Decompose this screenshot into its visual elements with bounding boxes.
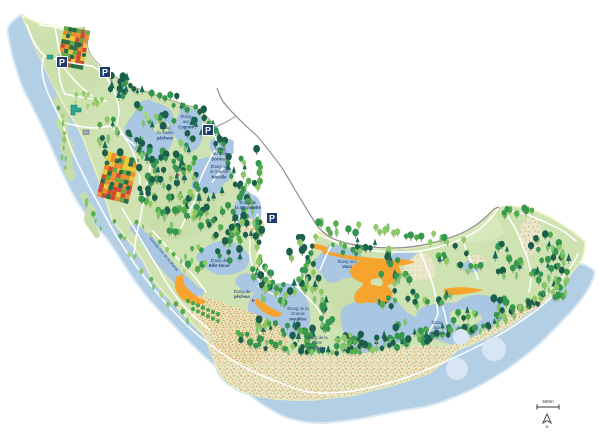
svg-text:P: P: [269, 213, 275, 223]
svg-text:P: P: [102, 67, 108, 77]
svg-text:P: P: [59, 57, 65, 67]
svg-text:N: N: [546, 424, 549, 429]
svg-text:500m: 500m: [542, 399, 554, 404]
svg-text:Étang deBille Noue: Étang deBille Noue: [209, 258, 230, 268]
svg-text:Étang dela GrandeNoisille: Étang dela GrandeNoisille: [210, 164, 229, 179]
svg-text:P: P: [205, 125, 211, 135]
svg-text:Étang dupêcheur: Étang dupêcheur: [234, 289, 251, 299]
